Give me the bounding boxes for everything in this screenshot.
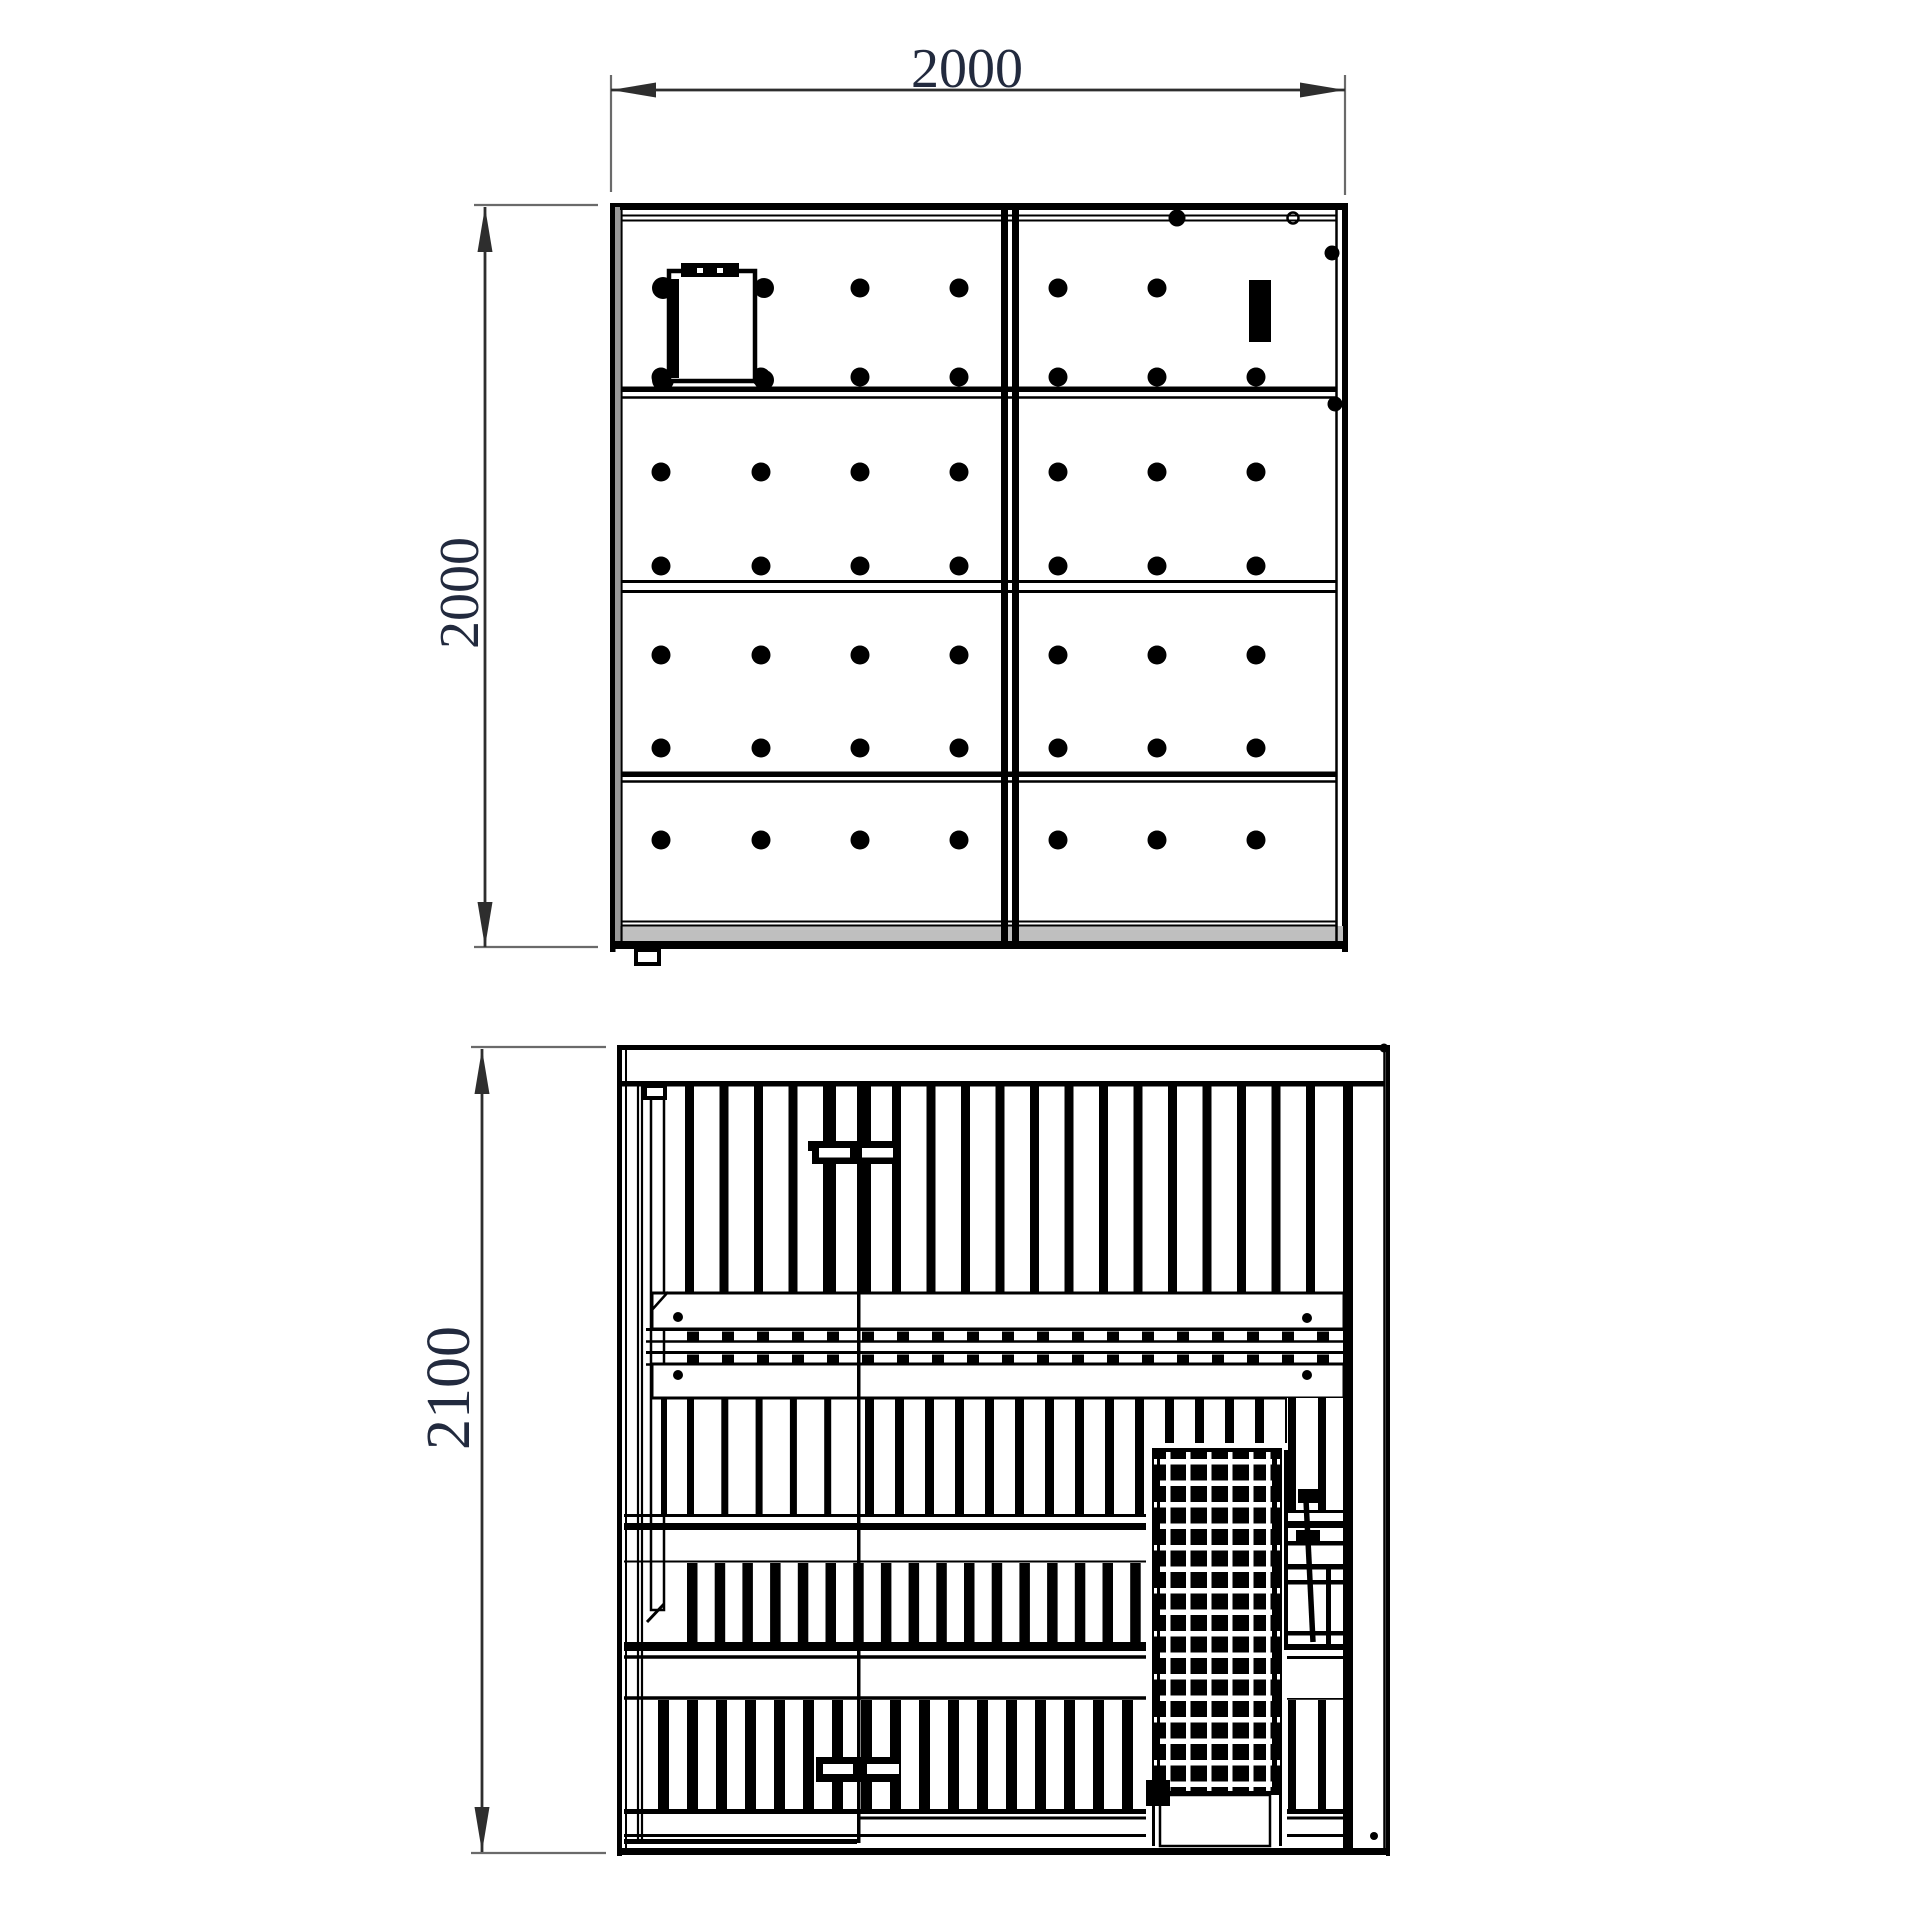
svg-text:2100: 2100: [415, 1326, 483, 1450]
svg-text:2000: 2000: [429, 537, 491, 649]
svg-text:2000: 2000: [911, 38, 1023, 100]
